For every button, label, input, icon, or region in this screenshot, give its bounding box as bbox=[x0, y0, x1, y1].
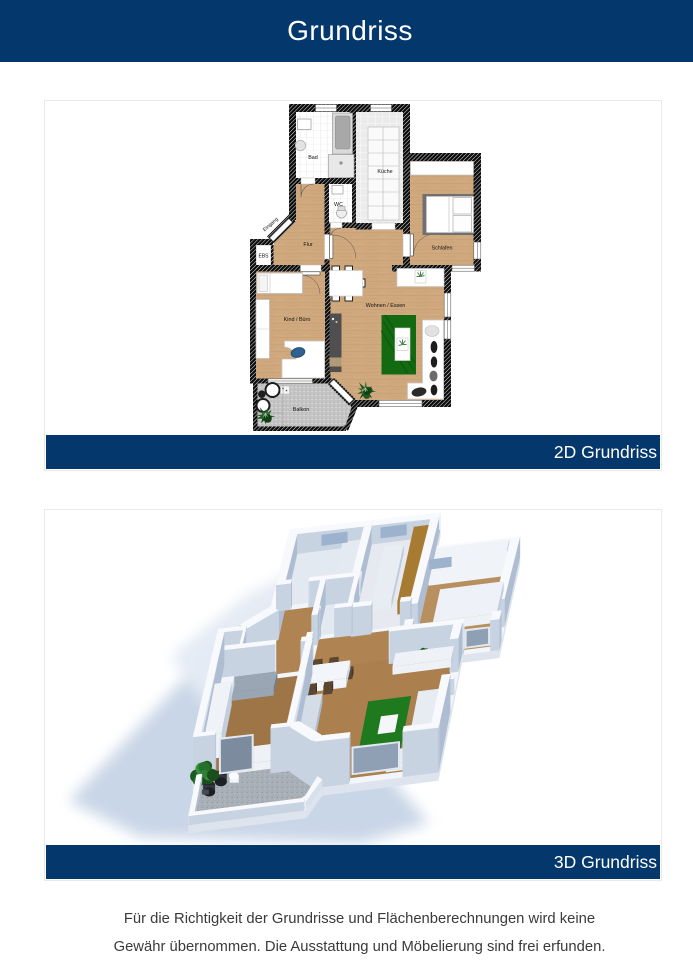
svg-text:WC: WC bbox=[334, 202, 343, 208]
svg-text:Küche: Küche bbox=[377, 169, 392, 175]
svg-text:Kind / Büro: Kind / Büro bbox=[284, 317, 311, 323]
svg-text:EBS: EBS bbox=[258, 254, 269, 260]
svg-text:Schlafen: Schlafen bbox=[432, 246, 453, 252]
svg-text:Flur: Flur bbox=[303, 242, 312, 248]
svg-text:Wohnen / Essen: Wohnen / Essen bbox=[366, 303, 405, 309]
svg-text:Balkon: Balkon bbox=[293, 407, 309, 413]
svg-text:Bad: Bad bbox=[308, 155, 318, 161]
